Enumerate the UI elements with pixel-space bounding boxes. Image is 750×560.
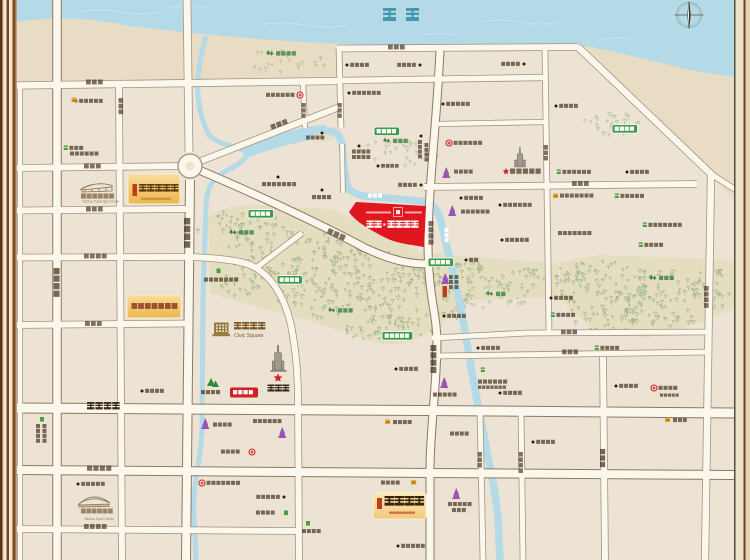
svg-text:Taizhou Passenger Center: Taizhou Passenger Center [82,200,121,204]
svg-text:Civic Square: Civic Square [234,333,264,339]
svg-text:Taizhou Sport Center: Taizhou Sport Center [84,517,115,521]
